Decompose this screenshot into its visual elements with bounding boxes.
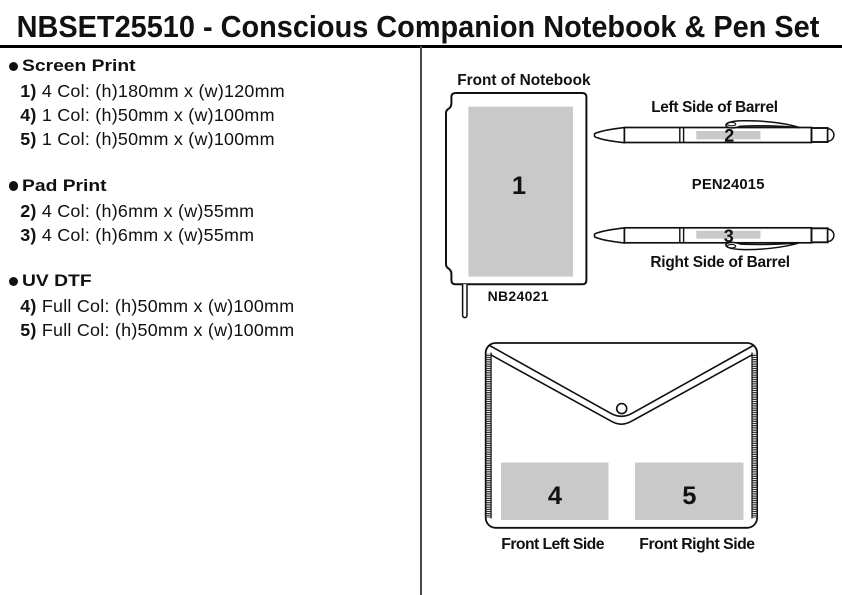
svg-text:4: 4	[548, 482, 563, 510]
svg-text:3: 3	[724, 226, 734, 246]
svg-text:5: 5	[682, 482, 696, 510]
svg-text:1: 1	[512, 172, 526, 200]
svg-text:2: 2	[724, 126, 734, 146]
